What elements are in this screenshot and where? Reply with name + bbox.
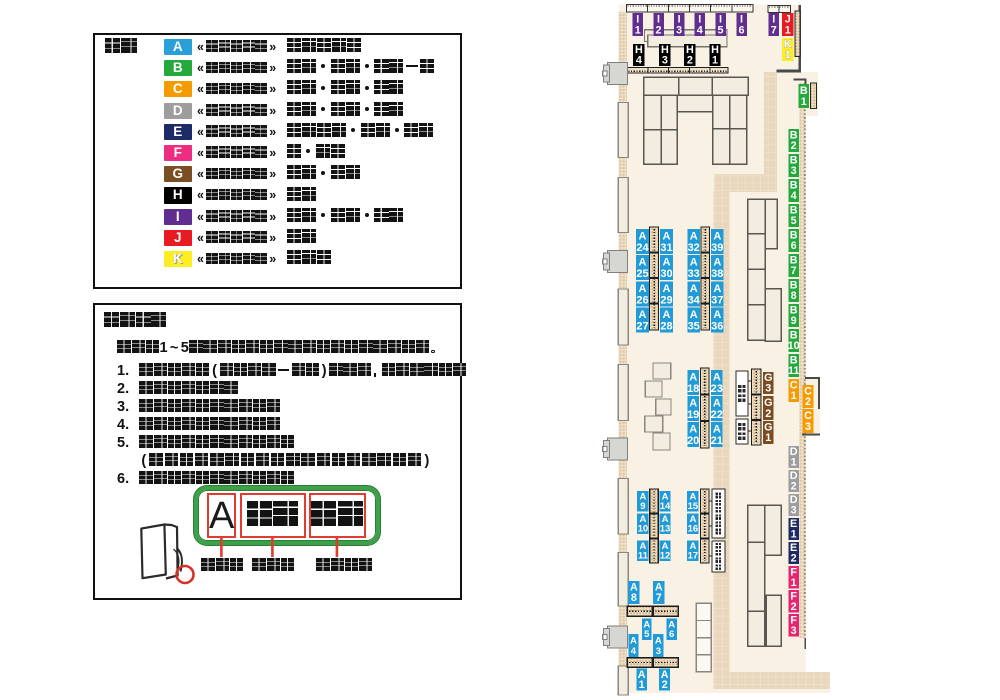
svg-text:4: 4 [791,190,797,202]
svg-text:A: A [690,283,698,295]
svg-text:39: 39 [711,242,723,254]
svg-text:4: 4 [636,54,642,66]
svg-text:A: A [713,398,721,410]
svg-text:A: A [713,257,721,269]
svg-text:5: 5 [791,215,797,227]
svg-text:16: 16 [688,524,699,535]
svg-text:35: 35 [688,321,700,333]
svg-text:1: 1 [791,390,797,402]
svg-text:1: 1 [639,679,645,691]
svg-text:31: 31 [660,242,672,254]
svg-text:29: 29 [660,294,672,306]
svg-text:8: 8 [791,290,797,302]
svg-text:27: 27 [636,321,648,333]
svg-text:37: 37 [711,294,723,306]
svg-text:14: 14 [660,501,671,512]
svg-text:10: 10 [788,340,800,352]
svg-text:A: A [690,257,698,269]
svg-text:30: 30 [660,268,672,280]
svg-text:A: A [713,283,721,295]
svg-text:A: A [663,231,671,243]
svg-text:11: 11 [638,551,649,562]
svg-text:2: 2 [805,396,811,408]
svg-text:A: A [663,309,671,321]
svg-text:1: 1 [791,577,797,589]
svg-text:9: 9 [640,501,645,512]
svg-text:19: 19 [687,409,699,421]
svg-text:3: 3 [805,421,811,433]
svg-text:24: 24 [636,242,649,254]
svg-text:26: 26 [636,294,648,306]
svg-text:6: 6 [669,629,674,640]
svg-text:1: 1 [801,96,807,108]
svg-text:17: 17 [688,551,699,562]
svg-text:1: 1 [785,49,791,61]
svg-text:3: 3 [662,54,668,66]
svg-text:A: A [630,636,637,647]
svg-text:2: 2 [687,54,693,66]
svg-text:A: A [690,231,698,243]
svg-text:36: 36 [711,321,723,333]
svg-text:2: 2 [765,408,771,420]
svg-text:A: A [713,424,721,436]
svg-text:1: 1 [791,528,797,540]
svg-text:A: A [689,398,697,410]
svg-text:3: 3 [791,504,797,516]
svg-text:3: 3 [676,24,682,36]
svg-text:A: A [713,372,721,384]
svg-text:20: 20 [687,435,699,447]
svg-text:5: 5 [718,24,724,36]
svg-text:7: 7 [771,24,777,36]
svg-text:A: A [663,257,671,269]
svg-text:18: 18 [687,383,699,395]
svg-text:1: 1 [791,456,797,468]
svg-text:5: 5 [644,629,650,640]
svg-text:A: A [639,231,647,243]
svg-text:2: 2 [791,480,797,492]
svg-text:22: 22 [711,409,723,421]
svg-text:4: 4 [631,646,637,657]
svg-text:A: A [689,372,697,384]
svg-text:3: 3 [656,646,661,657]
svg-text:23: 23 [711,383,723,395]
svg-text:32: 32 [688,242,700,254]
svg-text:2: 2 [791,552,797,564]
svg-text:13: 13 [660,524,671,535]
svg-text:38: 38 [711,268,723,280]
svg-text:2: 2 [656,24,662,36]
svg-text:8: 8 [631,592,637,604]
svg-text:2: 2 [791,140,797,152]
svg-text:12: 12 [660,551,671,562]
svg-text:A: A [713,309,721,321]
svg-text:25: 25 [636,268,648,280]
svg-text:A: A [655,636,662,647]
svg-text:3: 3 [791,165,797,177]
svg-text:7: 7 [656,592,662,604]
svg-text:3: 3 [791,625,797,637]
svg-text:7: 7 [791,265,797,277]
svg-text:6: 6 [739,24,745,36]
svg-text:28: 28 [660,321,672,333]
svg-text:11: 11 [788,365,799,377]
svg-text:A: A [639,309,647,321]
svg-text:15: 15 [688,501,699,512]
svg-text:2: 2 [791,601,797,613]
svg-text:A: A [690,309,698,321]
svg-text:21: 21 [711,435,723,447]
svg-text:A: A [639,257,647,269]
svg-text:34: 34 [688,294,701,306]
svg-text:A: A [663,283,671,295]
svg-text:A: A [639,283,647,295]
svg-text:1: 1 [785,24,791,36]
svg-text:10: 10 [638,524,649,535]
svg-text:6: 6 [791,240,797,252]
svg-text:3: 3 [765,382,771,394]
svg-text:1: 1 [712,54,718,66]
svg-text:4: 4 [697,24,703,36]
svg-text:A: A [689,424,697,436]
svg-text:33: 33 [688,268,700,280]
svg-text:1: 1 [635,24,641,36]
svg-text:9: 9 [791,315,797,327]
svg-text:2: 2 [662,679,668,691]
svg-text:1: 1 [765,432,771,444]
svg-text:A: A [713,231,721,243]
